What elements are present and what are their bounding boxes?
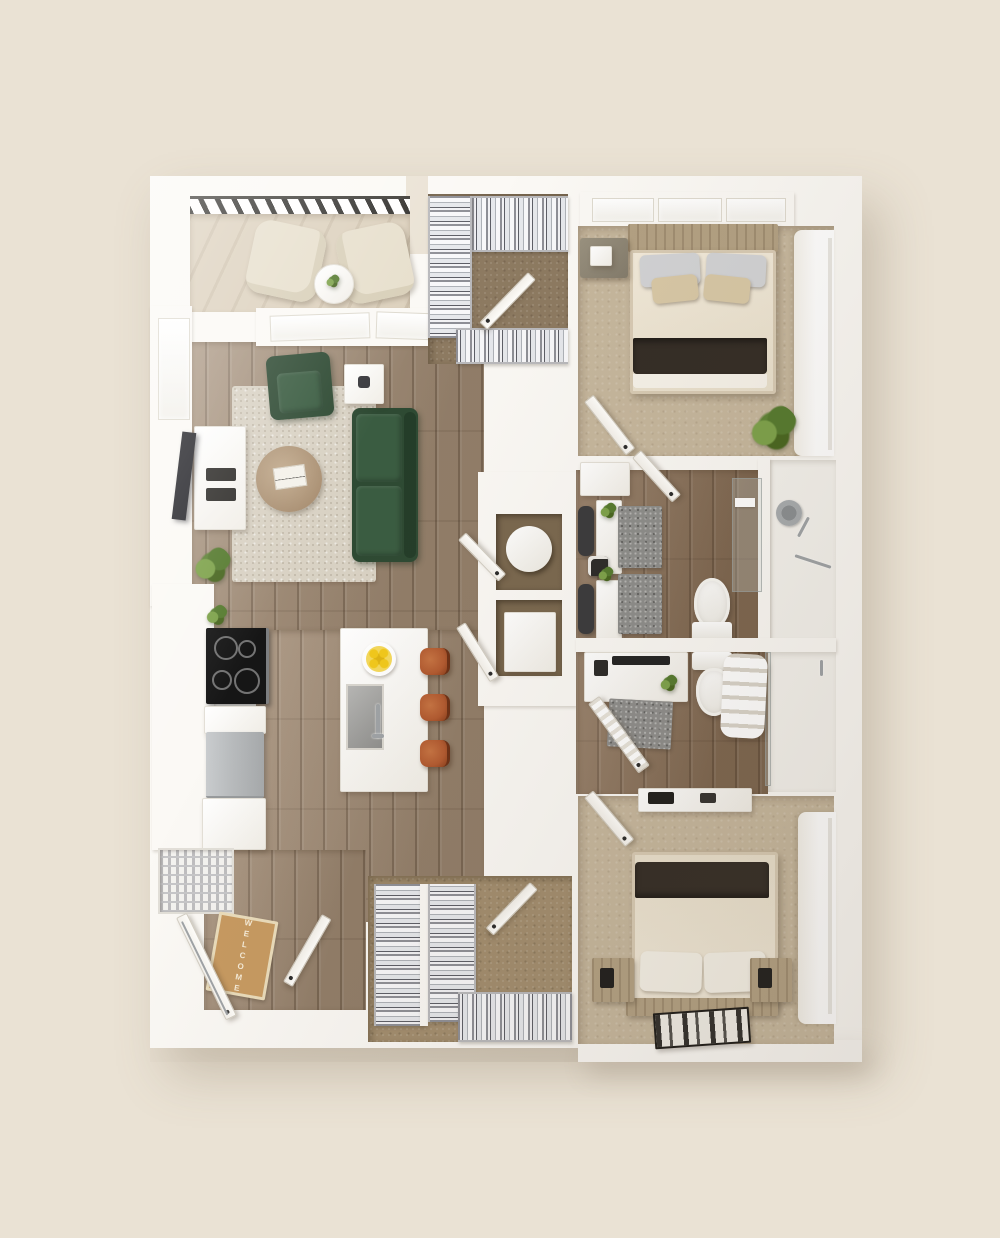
door-handle-icon bbox=[622, 836, 628, 842]
bed2-throw-blanket bbox=[635, 862, 769, 898]
shower-towel bbox=[735, 498, 755, 507]
bed1-accent-pillow bbox=[651, 274, 699, 305]
rack-divider bbox=[420, 884, 428, 1026]
dresser-decor bbox=[700, 793, 716, 803]
nook-cube-table bbox=[504, 612, 556, 672]
bedroom2-patterned-rug bbox=[653, 1007, 751, 1050]
bed1-accent-pillow bbox=[703, 274, 751, 305]
console-drawer bbox=[206, 468, 236, 481]
bed1-headboard bbox=[628, 224, 778, 252]
sofa-cushion bbox=[356, 486, 402, 556]
welcome-mat-text: WELCOME bbox=[231, 917, 252, 994]
bar-stool bbox=[420, 740, 450, 767]
door-handle-icon bbox=[485, 318, 491, 324]
kitchen-cabinet bbox=[202, 798, 266, 850]
door-handle-icon bbox=[494, 570, 500, 576]
closet-rack-hanging bbox=[374, 884, 424, 1026]
living-plant bbox=[194, 546, 232, 584]
door-handle-icon bbox=[491, 924, 497, 930]
hall-bench bbox=[580, 462, 630, 496]
hall-console bbox=[578, 506, 594, 556]
pantry-shelving bbox=[158, 848, 234, 914]
window-pane bbox=[158, 318, 190, 420]
lemons bbox=[366, 646, 392, 672]
towel-ladder bbox=[720, 653, 768, 739]
side-table-decor bbox=[358, 376, 370, 388]
bath1-toilet-bowl bbox=[694, 578, 730, 628]
vanity-plant bbox=[660, 674, 678, 692]
burner bbox=[234, 668, 260, 694]
door-handle-icon bbox=[668, 491, 674, 497]
vanity-decor bbox=[594, 660, 608, 676]
door-handle-icon bbox=[623, 444, 629, 450]
shower-drain-mat bbox=[776, 500, 802, 526]
closet-rack-hanging bbox=[428, 196, 472, 338]
nook-round-table bbox=[506, 526, 552, 572]
console-drawer bbox=[206, 488, 236, 501]
bath2-shower-head bbox=[820, 660, 823, 676]
refrigerator bbox=[206, 732, 264, 798]
bed1-throw-blanket bbox=[633, 338, 767, 374]
kitchen-cabinet bbox=[204, 706, 266, 734]
burner bbox=[238, 640, 256, 658]
bar-stool bbox=[420, 648, 450, 675]
hall-plant bbox=[600, 502, 617, 519]
hall-plant bbox=[598, 566, 614, 582]
counter-flowers bbox=[206, 604, 228, 626]
bath1-shower-glass bbox=[732, 478, 762, 592]
window-glass-line bbox=[828, 238, 832, 450]
sink-faucet-spout bbox=[372, 734, 384, 738]
bath-divider-wall bbox=[576, 638, 836, 652]
bed1-foot-fold bbox=[633, 374, 767, 388]
door-handle-icon bbox=[288, 975, 293, 980]
bath2-shower-floor bbox=[768, 652, 836, 792]
armchair-cushion bbox=[276, 370, 323, 414]
bed2-pillow bbox=[639, 951, 702, 993]
nightstand-front bbox=[758, 968, 772, 988]
dresser-decor bbox=[648, 792, 674, 804]
cooktop bbox=[206, 628, 269, 704]
nightstand-tray bbox=[590, 246, 612, 266]
window-pane bbox=[270, 312, 371, 341]
bedroom1-plant bbox=[750, 404, 798, 452]
hall-runner-rug bbox=[618, 506, 662, 568]
door-handle-icon bbox=[488, 671, 494, 677]
nightstand-front bbox=[600, 968, 614, 988]
burner bbox=[212, 670, 232, 690]
sink-faucet bbox=[376, 704, 380, 738]
closet-rack-hanging bbox=[456, 328, 568, 364]
hall-runner-rug bbox=[618, 574, 662, 634]
closet-rack-hanging bbox=[458, 992, 572, 1042]
window-pane bbox=[726, 198, 786, 222]
window-pane bbox=[592, 198, 654, 222]
sofa-cushion bbox=[356, 414, 402, 482]
window-pane bbox=[658, 198, 722, 222]
burner bbox=[214, 636, 238, 660]
vanity-faucet-bar bbox=[612, 656, 670, 665]
bar-stool bbox=[420, 694, 450, 721]
hall-console bbox=[578, 584, 594, 634]
table-plant bbox=[326, 274, 340, 288]
door-handle-icon bbox=[636, 762, 642, 768]
sofa-backrest bbox=[404, 412, 416, 558]
coffee-table-books bbox=[273, 464, 308, 490]
floor-plan-render: WELCOME bbox=[0, 0, 1000, 1238]
window-glass-line bbox=[828, 818, 832, 1014]
